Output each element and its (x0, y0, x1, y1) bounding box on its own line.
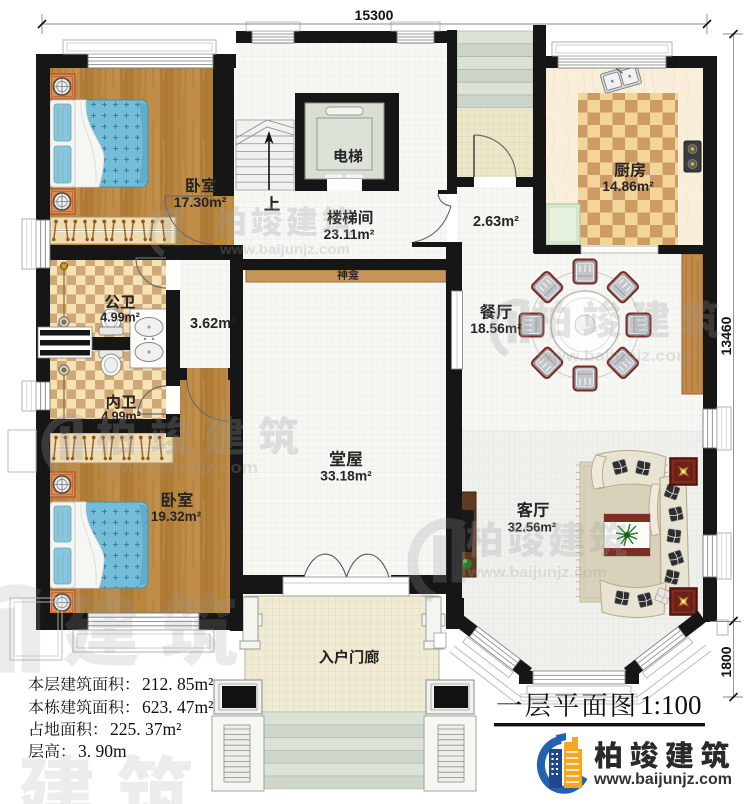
svg-text:15300: 15300 (355, 7, 394, 23)
svg-text:33.18m²: 33.18m² (320, 469, 372, 484)
svg-text:www.baijunjz.com: www.baijunjz.com (467, 565, 607, 581)
svg-text:4.99m²: 4.99m² (100, 311, 140, 325)
svg-text:1:100: 1:100 (640, 690, 702, 720)
svg-text:3.62m²: 3.62m² (190, 316, 236, 332)
svg-text:www.baijunjz.com: www.baijunjz.com (99, 459, 258, 477)
svg-text:225. 37m²: 225. 37m² (110, 719, 181, 739)
svg-text:17.30m²: 17.30m² (174, 195, 227, 211)
svg-text:623. 47m²: 623. 47m² (142, 697, 213, 717)
svg-text:www.baijunjz.com: www.baijunjz.com (537, 348, 692, 365)
svg-text:1800: 1800 (718, 646, 734, 677)
svg-text:www.baijunjz.com: www.baijunjz.com (219, 242, 350, 257)
svg-text:2.63m²: 2.63m² (473, 214, 519, 230)
svg-text:14.86m²: 14.86m² (602, 179, 654, 194)
svg-text:19.32m²: 19.32m² (151, 509, 202, 524)
svg-text:212. 85m²: 212. 85m² (142, 674, 213, 694)
svg-text:www.baijunjz.com: www.baijunjz.com (593, 771, 732, 788)
svg-text:3. 90m: 3. 90m (78, 741, 127, 761)
svg-text:13460: 13460 (718, 316, 734, 355)
